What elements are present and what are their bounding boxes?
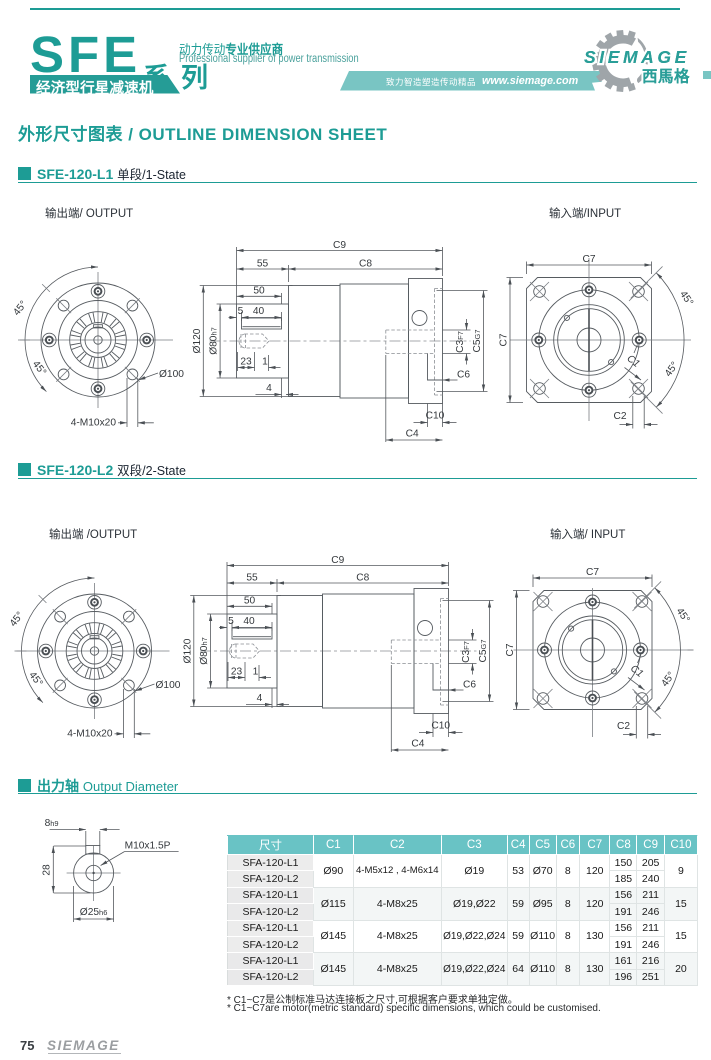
svg-text:C7: C7 <box>505 643 516 656</box>
svg-text:8h9: 8h9 <box>45 818 59 829</box>
svg-text:C4: C4 <box>411 739 424 750</box>
svg-text:Ø80h7: Ø80h7 <box>209 327 220 355</box>
svg-text:Ø80h7: Ø80h7 <box>199 637 210 665</box>
svg-text:45°: 45° <box>660 670 678 689</box>
svg-text:45°: 45° <box>8 610 26 629</box>
svg-text:4: 4 <box>257 693 263 704</box>
svg-text:C2: C2 <box>613 411 626 422</box>
svg-text:C8: C8 <box>359 259 372 270</box>
svg-text:23: 23 <box>231 667 243 678</box>
svg-text:C10: C10 <box>426 411 445 422</box>
svg-text:C1: C1 <box>628 663 645 680</box>
svg-text:C9: C9 <box>331 555 344 566</box>
svg-text:C7: C7 <box>586 567 599 578</box>
svg-text:50: 50 <box>244 596 256 607</box>
svg-text:5: 5 <box>238 306 244 317</box>
svg-text:C3F7: C3F7 <box>461 641 472 663</box>
svg-text:C5G7: C5G7 <box>478 639 489 662</box>
svg-text:Ø100: Ø100 <box>159 369 184 380</box>
svg-text:1: 1 <box>262 357 268 368</box>
svg-text:C8: C8 <box>356 573 369 584</box>
svg-text:SIEMAGE: SIEMAGE <box>584 47 690 67</box>
svg-text:C1: C1 <box>625 353 642 370</box>
svg-text:西馬格: 西馬格 <box>642 67 690 86</box>
svg-text:Ø120: Ø120 <box>192 328 203 353</box>
svg-text:C5G7: C5G7 <box>472 329 483 352</box>
svg-text:C7: C7 <box>582 254 595 265</box>
svg-text:Ø25h6: Ø25h6 <box>80 907 108 918</box>
svg-text:28: 28 <box>42 864 53 876</box>
svg-text:23: 23 <box>240 357 252 368</box>
svg-text:55: 55 <box>246 573 258 584</box>
svg-text:40: 40 <box>253 306 265 317</box>
svg-text:45°: 45° <box>663 360 681 379</box>
svg-text:C4: C4 <box>406 429 419 440</box>
svg-text:45°: 45° <box>677 289 695 308</box>
svg-text:4: 4 <box>266 383 272 394</box>
svg-text:40: 40 <box>243 616 255 627</box>
svg-text:C3F7: C3F7 <box>455 331 466 353</box>
svg-text:M10x1.5P: M10x1.5P <box>125 841 171 852</box>
svg-text:C7: C7 <box>499 333 510 346</box>
svg-text:4-M10x20: 4-M10x20 <box>71 418 117 429</box>
svg-text:Ø100: Ø100 <box>156 680 181 691</box>
svg-text:C10: C10 <box>431 721 450 732</box>
svg-text:Ø120: Ø120 <box>183 638 194 663</box>
svg-text:C2: C2 <box>617 721 630 732</box>
svg-text:C6: C6 <box>463 680 476 691</box>
svg-text:5: 5 <box>228 616 234 627</box>
svg-text:4-M10x20: 4-M10x20 <box>67 729 113 740</box>
svg-text:1: 1 <box>253 667 259 678</box>
svg-text:55: 55 <box>257 259 269 270</box>
svg-text:50: 50 <box>253 286 265 297</box>
svg-text:C6: C6 <box>457 370 470 381</box>
svg-text:C9: C9 <box>333 240 346 251</box>
svg-text:45°: 45° <box>11 299 29 318</box>
